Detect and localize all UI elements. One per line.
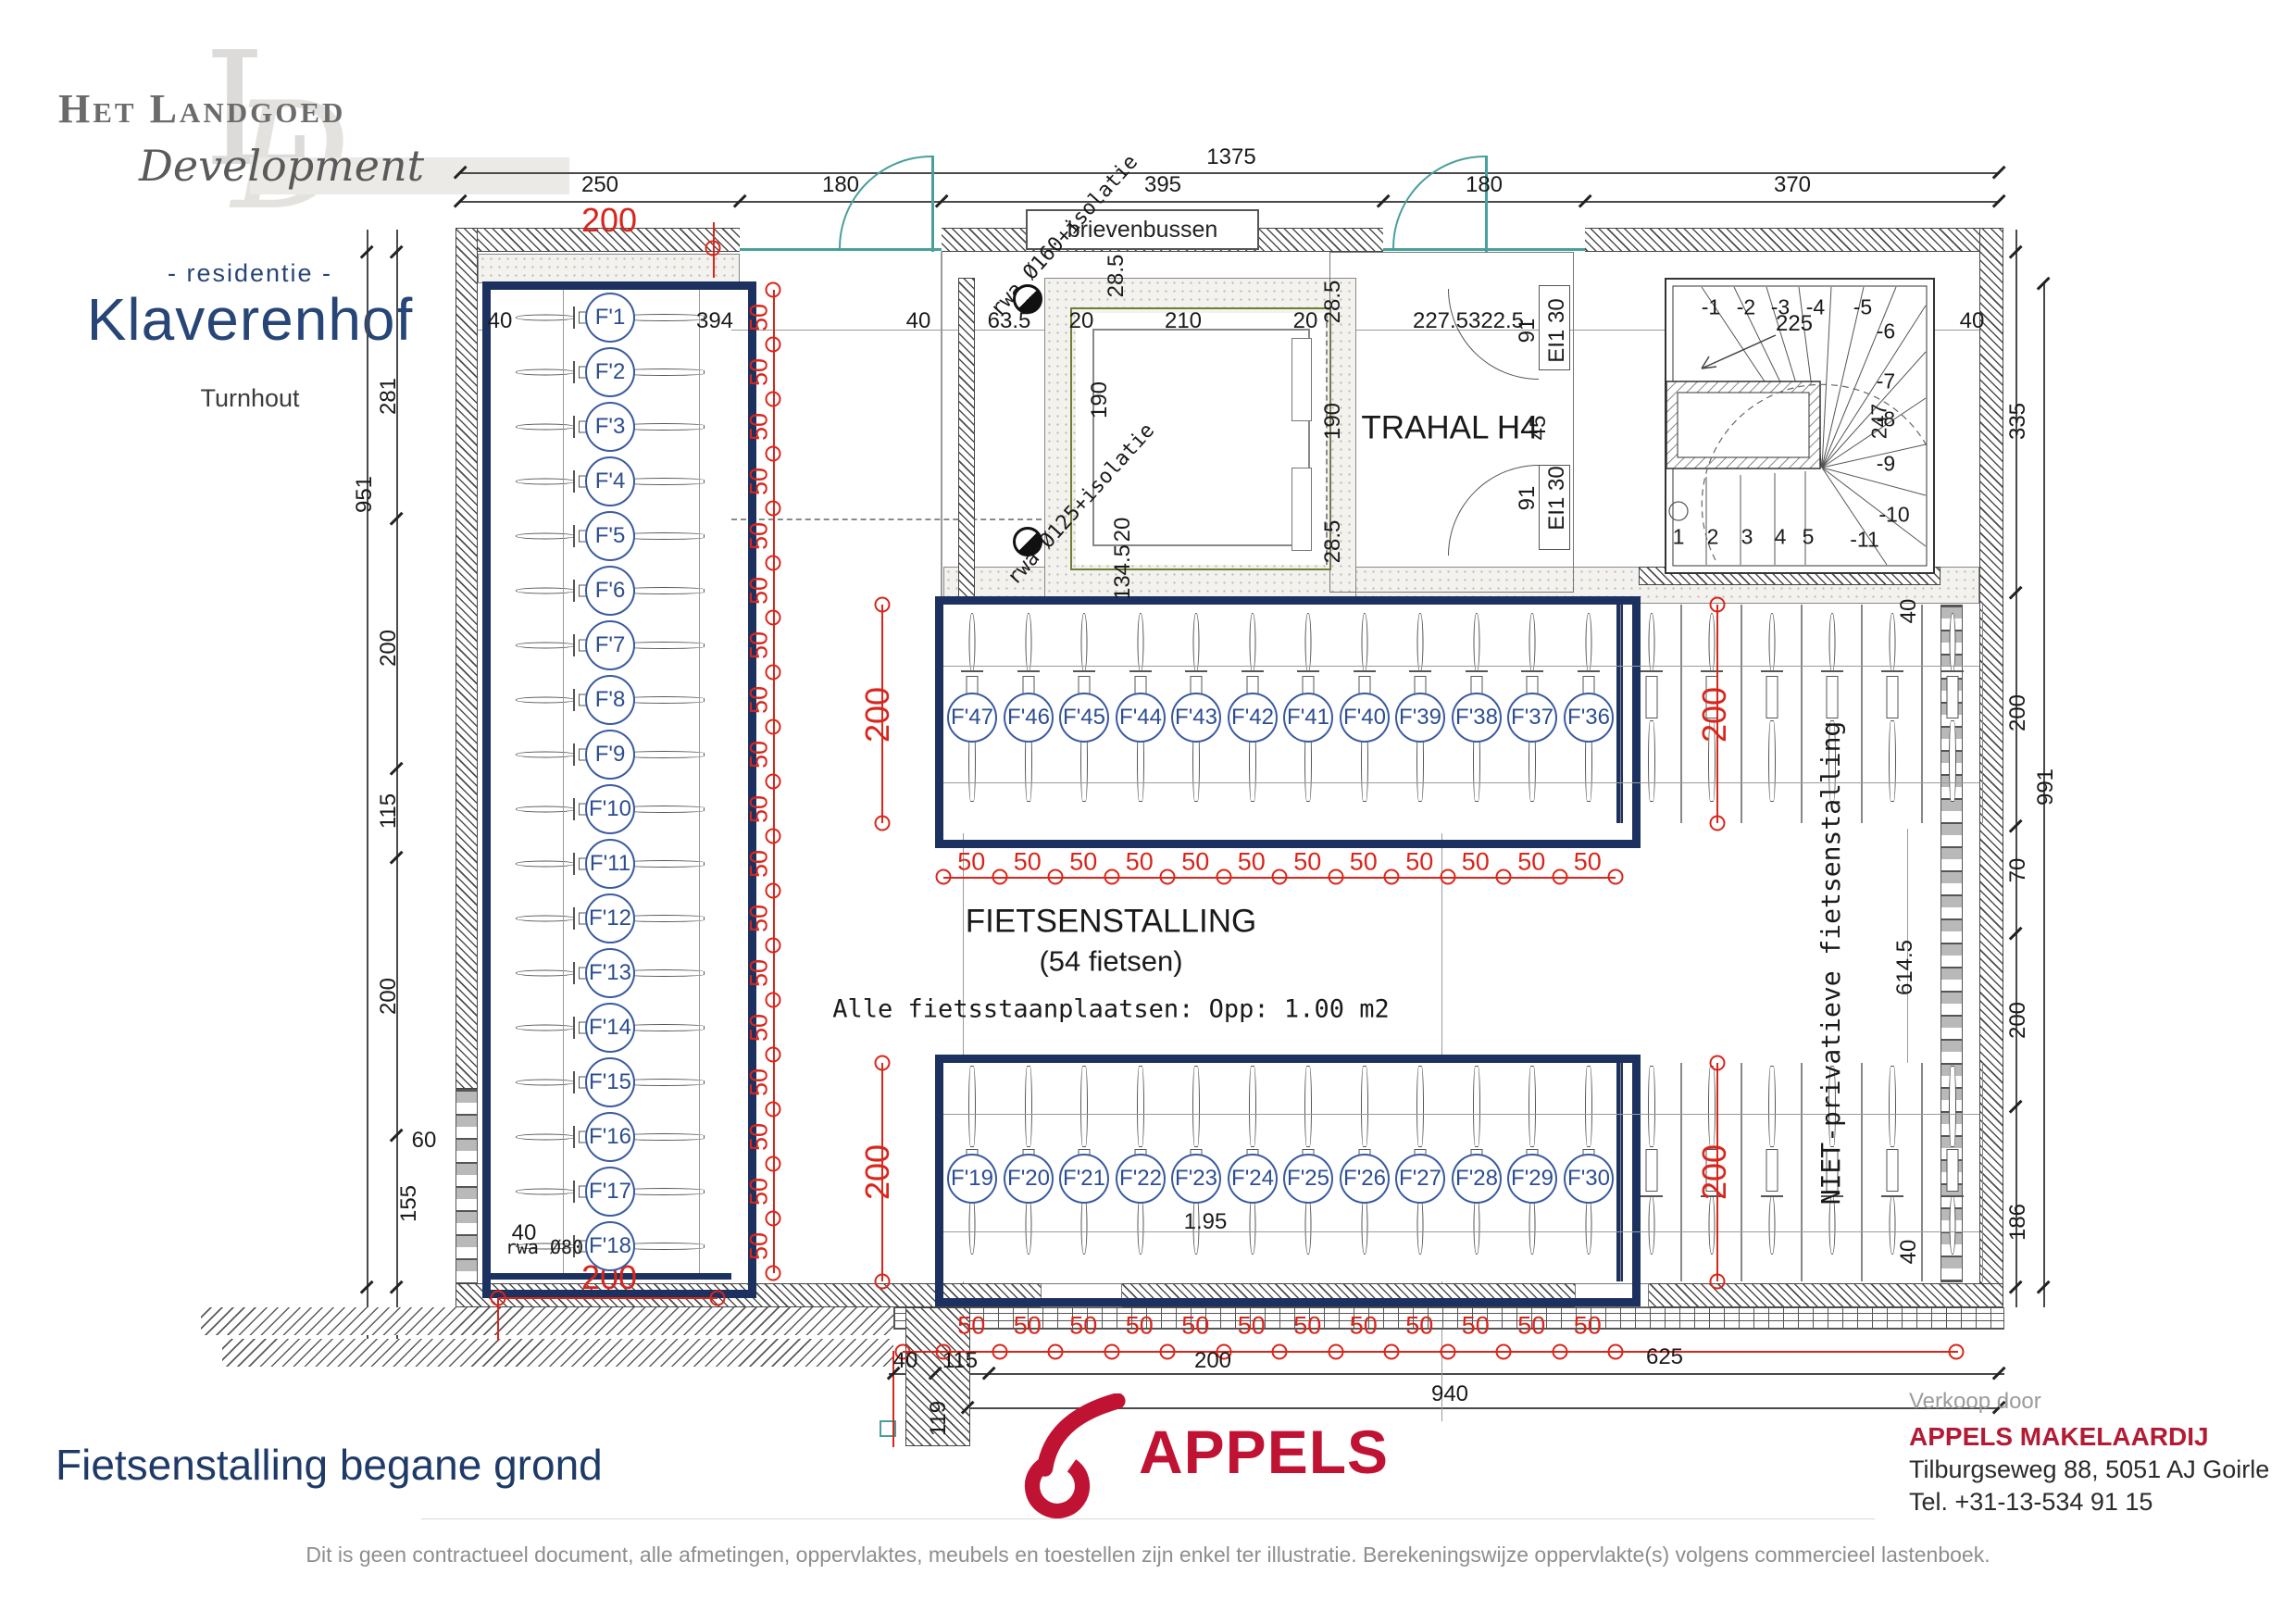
red-dim-label: 200 (1698, 687, 1731, 743)
stall-number: F'37 (1511, 705, 1554, 731)
bike-stall: F'14 (491, 1000, 731, 1061)
dim-label: 134.5 (1112, 544, 1134, 600)
ground-hatch (201, 1307, 893, 1335)
stall-number-badge: F'18 (585, 1221, 635, 1271)
bike-stall: F'13 (491, 945, 731, 1006)
stall-number: F'9 (595, 742, 626, 768)
door-leaf (931, 156, 934, 252)
stall-number: F'27 (1399, 1166, 1441, 1192)
bike-stall: F'40 (1336, 605, 1399, 823)
stall-number: F'46 (1007, 705, 1050, 731)
dim-line (2015, 230, 2017, 1307)
hall-label: TRAHAL H4 (1361, 412, 1538, 444)
bike-stall: F'23 (1167, 1063, 1230, 1281)
stair-step-number: 247 (1869, 404, 1890, 439)
red-dim-label: 200 (1698, 1144, 1731, 1200)
appels-logo-icon (1007, 1393, 1132, 1518)
bicycle-icon (1941, 613, 1964, 804)
bike-stall: F'16 (491, 1109, 731, 1170)
dim-label: 91 (1516, 319, 1539, 344)
centerline (731, 518, 1051, 520)
dim-label: 20 (1293, 310, 1318, 332)
stair-step-number: 4 (1775, 527, 1787, 548)
stall-number-badge: F'47 (947, 693, 997, 743)
bike-stall: F'4 (491, 454, 731, 515)
dim-label: 45 (1528, 416, 1550, 441)
dim-label: 20 (1069, 310, 1094, 332)
bike-stall: F'20 (1000, 1063, 1063, 1281)
stall-number-badge: F'44 (1116, 693, 1166, 743)
stall-number-badge: F'37 (1507, 693, 1557, 743)
door-swing-icon (1392, 156, 1485, 248)
dim-label: 20 (1112, 518, 1134, 543)
dim-label: 200 (378, 978, 400, 1015)
dim-label: 40 (906, 310, 931, 332)
brick-course (893, 1307, 2004, 1330)
red-node-icon (1710, 1056, 1726, 1071)
dim-label: 200 (2007, 1002, 2029, 1039)
dim-label: 991 (2035, 768, 2057, 806)
dim-label: 28.5 (1322, 520, 1344, 564)
bike-stall (1620, 605, 1682, 823)
stall-number: F'19 (951, 1166, 993, 1192)
red-node-icon (1710, 1274, 1726, 1290)
stall-number: F'45 (1063, 705, 1105, 731)
stall-number-badge: F'21 (1059, 1154, 1109, 1204)
dim-label: 210 (1165, 310, 1202, 332)
dim-label: 1.95 (1184, 1211, 1228, 1233)
bicycle-icon (1941, 1064, 1964, 1255)
door-threshold (1383, 248, 1585, 251)
dim-label: 60 (412, 1130, 437, 1152)
rail-line (943, 666, 1979, 667)
bike-stall (1741, 1063, 1803, 1281)
stair-step-number: -6 (1877, 321, 1895, 343)
red-node-icon (875, 816, 891, 831)
dim-line (889, 1373, 2004, 1375)
stall-number: F'18 (589, 1233, 631, 1259)
stall-number-badge: F'7 (585, 620, 635, 670)
stall-number: F'17 (589, 1179, 631, 1205)
dim-label: 63.5 (988, 310, 1031, 332)
dim-label: 190 (1089, 381, 1111, 418)
dim-label: 200 (2007, 694, 2029, 731)
bike-stall: F'9 (491, 727, 731, 788)
stall-number-badge: F'12 (585, 893, 635, 943)
bike-stall (1741, 605, 1803, 823)
plan-drawing: brievenbussen rwa Ø160+isolatie rwa Ø125… (0, 0, 2296, 1624)
stall-number: F'30 (1567, 1166, 1610, 1192)
bike-stall: F'27 (1391, 1063, 1454, 1281)
stall-number: F'36 (1567, 705, 1610, 731)
dim-label: 40 (1960, 310, 1985, 332)
red-node-icon (875, 597, 891, 613)
vendor-label: Verkoop door (1909, 1389, 2279, 1415)
vendor-block: Verkoop door APPELS MAKELAARDIJ Tilburgs… (1909, 1389, 2279, 1517)
concrete-band (478, 254, 740, 283)
dim-label: EI1 30 (1546, 466, 1568, 530)
stall-number-badge: F'45 (1059, 693, 1109, 743)
red-node-icon (1949, 1344, 1965, 1360)
dim-label: 115 (378, 793, 400, 829)
vendor-address: Tilburgseweg 88, 5051 AJ Goirle (1909, 1455, 2279, 1484)
stall-number-badge: F'8 (585, 675, 635, 725)
stall-number: F'5 (595, 523, 626, 549)
bicycle-icon (1641, 1064, 1663, 1255)
bike-stall (1921, 605, 1983, 823)
bike-stall: F'43 (1167, 605, 1230, 823)
dim-label: 115 (942, 1350, 978, 1372)
stall-number-badge: F'13 (585, 948, 635, 998)
stall-number: F'38 (1455, 705, 1498, 731)
dim-label: 155 (398, 1185, 420, 1222)
stall-number: F'11 (590, 851, 630, 877)
stall-number-badge: F'15 (585, 1057, 635, 1107)
stall-number: F'43 (1175, 705, 1217, 731)
bike-stall: F'26 (1336, 1063, 1399, 1281)
bicycle-icon (1881, 613, 1903, 804)
stall-number: F'6 (595, 578, 626, 604)
stall-number: F'29 (1511, 1166, 1554, 1192)
stall-number-badge: F'38 (1452, 693, 1502, 743)
stair-step-number: 2 (1707, 527, 1719, 548)
stall-number: F'2 (595, 359, 626, 385)
red-dim-line (498, 1297, 717, 1299)
stall-number-badge: F'1 (585, 293, 635, 343)
stall-number-badge: F'16 (585, 1112, 635, 1162)
bicycle-icon (1761, 613, 1783, 804)
bike-stall: F'36 (1560, 605, 1623, 823)
stall-number-badge: F'11 (585, 839, 635, 889)
dim-label: 40 (488, 310, 513, 332)
dim-label: 951 (354, 476, 376, 513)
pier (958, 278, 975, 597)
bike-stall: F'29 (1504, 1063, 1566, 1281)
dim-label: 225 (1776, 313, 1813, 335)
bike-stall (1861, 605, 1923, 823)
dim-line (460, 201, 2000, 203)
dim-label: 614.5 (1894, 940, 1916, 995)
dim-line (460, 172, 2000, 174)
stall-number: F'44 (1119, 705, 1162, 731)
dim-label: 40 (1898, 1240, 1920, 1265)
stair-step-number: -9 (1877, 454, 1895, 475)
storage-title: FIETSENSTALLING (966, 906, 1256, 938)
bike-stall: F'8 (491, 672, 731, 733)
stair-step-number: -5 (1853, 297, 1872, 319)
stall-number: F'13 (589, 960, 631, 986)
bike-stall: F'38 (1448, 605, 1511, 823)
elevator-door-panel (1291, 338, 1312, 421)
stall-number: F'7 (595, 632, 626, 658)
stall-number: F'28 (1455, 1166, 1498, 1192)
stair-step-number: -1 (1702, 297, 1720, 319)
footer-divider (421, 1518, 1875, 1519)
dim-label: 70 (2007, 858, 2029, 883)
bike-stall: F'2 (491, 344, 731, 406)
stall-number: F'14 (589, 1015, 631, 1041)
stall-number-badge: F'2 (585, 347, 635, 397)
dim-label: 200 (378, 630, 400, 667)
dim-label: 370 (1774, 174, 1811, 196)
stall-number: F'47 (951, 705, 993, 731)
bike-stall: F'41 (1279, 605, 1342, 823)
disclaimer-text: Dit is geen contractueel document, alle … (0, 1543, 2296, 1568)
dim-label: 91 (1516, 486, 1539, 511)
bike-stall: F'44 (1112, 605, 1175, 823)
dim-label: 1375 (1206, 146, 1255, 169)
stall-number-badge: F'22 (1116, 1154, 1166, 1204)
bike-stall: F'42 (1224, 605, 1287, 823)
stall-number-badge: F'30 (1564, 1154, 1614, 1204)
dim-line (367, 230, 368, 1348)
stall-number: F'41 (1287, 705, 1329, 731)
red-node-icon (1710, 597, 1726, 613)
stall-number-badge: F'19 (947, 1154, 997, 1204)
stall-number-badge: F'17 (585, 1167, 635, 1217)
stair-step-number: 1 (1673, 527, 1685, 548)
stall-number: F'39 (1399, 705, 1441, 731)
stair-step-number: -7 (1877, 371, 1895, 393)
dim-label: 395 (1144, 174, 1181, 196)
bike-stall: F'12 (491, 891, 731, 952)
dim-label: 180 (1466, 174, 1503, 196)
floor-plan-sheet: L D Het Landgoed Development - residenti… (0, 0, 2296, 1624)
red-node-icon (875, 1056, 891, 1071)
bike-stall: F'11 (491, 836, 731, 897)
red-dim-label: 200 (861, 1144, 894, 1200)
rail-line (699, 290, 700, 1273)
bicycle-icon (1881, 1064, 1903, 1255)
bike-stall: F'22 (1112, 1063, 1175, 1281)
stall-number-badge: F'40 (1340, 693, 1390, 743)
drawing-title: Fietsenstalling begane grond (56, 1440, 603, 1490)
dim-label: 200 (1194, 1350, 1231, 1372)
red-node-icon (875, 1274, 891, 1290)
stall-number-badge: F'23 (1171, 1154, 1221, 1204)
stall-number-badge: F'4 (585, 456, 635, 506)
red-dim-label: 200 (581, 204, 637, 237)
dim-label: EI1 30 (1546, 298, 1568, 362)
appels-logo-text: APPELS (1139, 1417, 1389, 1487)
bike-stall: F'10 (491, 781, 731, 843)
stall-number: F'23 (1175, 1166, 1217, 1192)
vendor-phone: Tel. +31-13-534 91 15 (1909, 1488, 2279, 1517)
stall-number: F'15 (589, 1069, 631, 1095)
dim-label: 335 (2007, 403, 2029, 440)
stall-number: F'24 (1231, 1166, 1274, 1192)
stall-number: F'4 (595, 468, 626, 494)
stall-number-badge: F'25 (1283, 1154, 1333, 1204)
private-storage-note: NIET-privatieve fietsenstalling (1818, 721, 1844, 1206)
bicycle-icon (1641, 613, 1663, 804)
bike-stall: F'17 (491, 1164, 731, 1225)
dim-label: 180 (822, 174, 859, 196)
bike-stall: F'3 (491, 399, 731, 460)
stall-number: F'21 (1063, 1166, 1105, 1192)
bike-stall: F'37 (1504, 605, 1566, 823)
storage-note: Alle fietsstaanplaatsen: Opp: 1.00 m2 (832, 997, 1389, 1022)
bike-stall: F'25 (1279, 1063, 1342, 1281)
stall-number-badge: F'41 (1283, 693, 1333, 743)
bike-stall: F'15 (491, 1055, 731, 1116)
stall-number-badge: F'46 (1004, 693, 1054, 743)
stall-number: F'42 (1231, 705, 1274, 731)
bike-stall: F'39 (1391, 605, 1454, 823)
dim-label: 186 (2007, 1204, 2029, 1241)
bike-stall: F'6 (491, 563, 731, 624)
stair-step-number: -10 (1878, 505, 1909, 526)
dim-label: 40 (1898, 599, 1920, 624)
stair-step-number: -11 (1850, 530, 1879, 551)
stall-number: F'25 (1287, 1166, 1329, 1192)
bike-stall: F'24 (1224, 1063, 1287, 1281)
elevator-door-panel (1291, 468, 1312, 551)
stall-number: F'40 (1343, 705, 1386, 731)
bike-stall: F'21 (1055, 1063, 1118, 1281)
bike-stall: F'45 (1055, 605, 1118, 823)
stall-number-badge: F'27 (1395, 1154, 1445, 1204)
stall-number: F'26 (1343, 1166, 1386, 1192)
door-leaf (1485, 156, 1488, 252)
stall-number-badge: F'14 (585, 1003, 635, 1053)
stall-number-badge: F'9 (585, 730, 635, 780)
dim-label: 28.5 (1322, 281, 1344, 324)
dim-label: 625 (1646, 1346, 1683, 1368)
stall-number: F'12 (589, 906, 631, 931)
stall-number-badge: F'3 (585, 402, 635, 452)
rail-line (943, 1231, 1979, 1232)
storage-count: (54 fietsen) (1039, 947, 1182, 976)
stall-number: F'1 (595, 305, 626, 331)
bike-stall (1620, 1063, 1682, 1281)
stall-number: F'8 (595, 687, 626, 713)
bike-stall: F'28 (1448, 1063, 1511, 1281)
red-node-icon (710, 1291, 726, 1306)
bike-stall: F'5 (491, 508, 731, 569)
bike-stall: F'7 (491, 618, 731, 679)
stair-step-number: 5 (1803, 527, 1815, 548)
stair-step-number: 3 (1741, 527, 1753, 548)
dim-label: 28.5 (1105, 255, 1128, 298)
stall-number: F'10 (589, 796, 631, 822)
stall-number-badge: F'36 (1564, 693, 1614, 743)
stall-number: F'20 (1007, 1166, 1050, 1192)
stall-number-badge: F'6 (585, 566, 635, 616)
stall-number-badge: F'43 (1171, 693, 1221, 743)
vendor-name: APPELS MAKELAARDIJ (1909, 1422, 2279, 1452)
red-node-icon (491, 1291, 506, 1306)
stall-number: F'3 (595, 414, 626, 440)
stall-number-badge: F'24 (1228, 1154, 1278, 1204)
red-node-icon (705, 241, 721, 256)
dim-label: 250 (581, 174, 618, 196)
floor-drain-icon (1013, 527, 1042, 556)
stall-number-badge: F'29 (1507, 1154, 1557, 1204)
dim-label: 394 (696, 310, 733, 332)
stall-number-badge: F'28 (1452, 1154, 1502, 1204)
stall-number-badge: F'10 (585, 784, 635, 834)
partition-line (941, 252, 942, 597)
stall-number: F'22 (1119, 1166, 1162, 1192)
stair-step-number: -2 (1737, 297, 1755, 319)
stall-number: F'16 (589, 1124, 631, 1150)
dim-label: 119 (928, 1401, 950, 1436)
stall-number-badge: F'20 (1004, 1154, 1054, 1204)
bike-stall: F'19 (943, 1063, 1006, 1281)
ground-hatch (222, 1339, 893, 1367)
red-dim-label: 200 (861, 687, 894, 743)
rail-line (563, 290, 564, 1273)
wall-left-window (455, 1089, 478, 1285)
bicycle-icon (1761, 1064, 1783, 1255)
bike-stall: F'30 (1560, 1063, 1623, 1281)
stall-number-badge: F'26 (1340, 1154, 1390, 1204)
dim-label: 940 (1431, 1383, 1468, 1405)
dim-label: 40 (512, 1222, 537, 1244)
bike-stall: F'47 (943, 605, 1006, 823)
dim-label: 227.5 (1413, 310, 1468, 332)
dim-label: 281 (378, 378, 400, 415)
red-node-icon (1710, 816, 1726, 831)
stall-number-badge: F'5 (585, 511, 635, 561)
wall-left (455, 228, 478, 1089)
stall-number-badge: F'39 (1395, 693, 1445, 743)
bike-stall: F'46 (1000, 605, 1063, 823)
bike-stall (1921, 1063, 1983, 1281)
dim-label: 190 (1322, 403, 1344, 440)
door-threshold (740, 248, 942, 251)
stall-number-badge: F'42 (1228, 693, 1278, 743)
door-swing-icon (839, 156, 931, 248)
